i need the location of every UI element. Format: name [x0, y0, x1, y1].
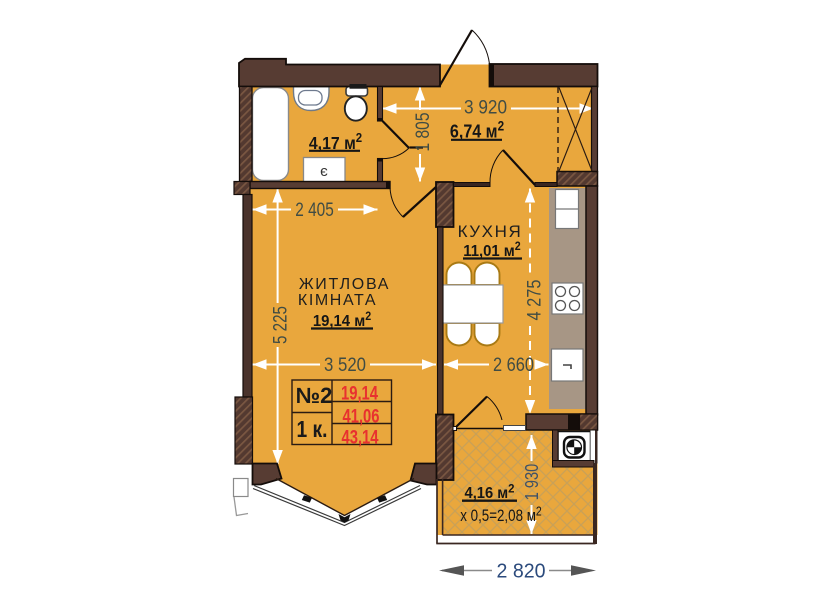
svg-text:43,14: 43,14 [342, 427, 379, 448]
svg-text:КІМНАТА: КІМНАТА [298, 292, 377, 309]
svg-text:1 930: 1 930 [522, 464, 542, 501]
svg-text:1 к.: 1 к. [297, 416, 328, 442]
svg-text:4 275: 4 275 [525, 280, 546, 321]
svg-text:3 520: 3 520 [324, 355, 366, 376]
svg-text:41,06: 41,06 [343, 406, 380, 427]
svg-text:4,16 м2: 4,16 м2 [465, 482, 515, 502]
svg-text:19,14 м2: 19,14 м2 [313, 311, 371, 330]
svg-text:5 225: 5 225 [271, 306, 292, 344]
svg-text:є: є [320, 163, 328, 180]
svg-text:6,74 м2: 6,74 м2 [450, 119, 504, 142]
svg-text:1 805: 1 805 [413, 113, 434, 152]
svg-text:11,01 м2: 11,01 м2 [463, 241, 520, 260]
svg-text:2 660: 2 660 [493, 355, 534, 376]
svg-text:ЖИТЛОВА: ЖИТЛОВА [299, 276, 390, 293]
svg-text:2 405: 2 405 [295, 200, 334, 221]
svg-text:19,14: 19,14 [341, 383, 378, 404]
svg-text:3 920: 3 920 [464, 98, 507, 119]
svg-text:№2: №2 [296, 383, 333, 408]
svg-text:х 0,5=2,08 м2: х 0,5=2,08 м2 [460, 503, 541, 525]
svg-text:2 820: 2 820 [497, 561, 546, 583]
svg-text:КУХНЯ: КУХНЯ [458, 222, 523, 241]
